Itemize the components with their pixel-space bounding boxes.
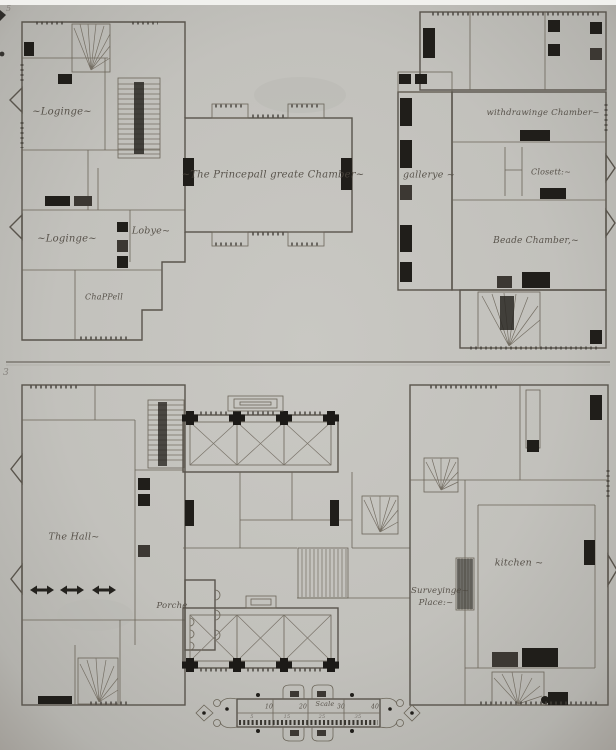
- scale-minor-5: 5: [250, 714, 253, 720]
- scale-minor-25: 25: [319, 714, 326, 720]
- room-label-loginge-upper: ~Loginge~: [32, 107, 92, 118]
- room-label-beade-chamber: Beade Chamber,~: [493, 236, 579, 246]
- fireplace: [24, 42, 34, 56]
- room-label-the-hall: The Hall~: [49, 532, 100, 543]
- scale-title: Scale: [316, 700, 335, 708]
- scale-minor-35: 35: [355, 714, 362, 720]
- fireplace: [74, 196, 92, 206]
- scale-minor-15: 15: [284, 714, 291, 720]
- room-label-kitchen: kitchen ~: [495, 558, 544, 569]
- room-label-surveyinge-place: Place:~: [419, 598, 454, 608]
- room-label-loginge-lower: ~Loginge~: [37, 234, 97, 245]
- scale-major-20: 20: [299, 704, 307, 711]
- fireplace: [58, 74, 72, 84]
- fireplace: [45, 196, 70, 206]
- fireplace: [117, 240, 128, 252]
- room-label-surveyinge: Surveyinge~: [411, 586, 469, 596]
- room-label-great-chamber: ~The Princepall greate Chamber~: [182, 170, 365, 181]
- stair-dark-flight: [134, 82, 144, 154]
- margin-mark-left-center: 3: [3, 368, 9, 378]
- room-label-lobye: Lobye~: [132, 226, 170, 237]
- room-label-closett: Closett:~: [531, 168, 571, 177]
- manuscript-plan-photo: ~Loginge~ ~Loginge~ Lobye~ ChaPPell ~The…: [0, 0, 616, 750]
- room-label-withdrawinge-chamber: withdrawinge Chamber~: [486, 108, 599, 118]
- room-label-porche: Porche: [156, 601, 187, 611]
- fireplace: [117, 256, 128, 268]
- scale-major-30: 30: [337, 704, 345, 711]
- oven: [456, 558, 474, 610]
- photo-top-edge: [0, 0, 616, 5]
- fireplace: [117, 222, 128, 232]
- margin-mark-top-left: 5: [6, 4, 11, 13]
- scale-major-10: 10: [265, 704, 273, 711]
- room-label-gallerye: gallerye ~: [403, 170, 455, 181]
- scale-major-40: 40: [371, 704, 379, 711]
- room-label-chappell: ChaPPell: [85, 293, 123, 302]
